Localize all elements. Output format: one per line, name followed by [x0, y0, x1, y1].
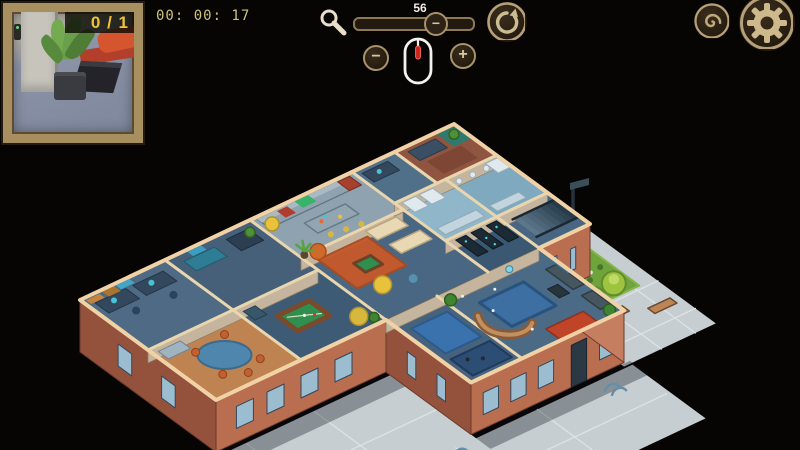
grass-tuft [597, 264, 603, 270]
hint-button[interactable] [694, 3, 730, 39]
magnifier-icon [318, 8, 350, 38]
island-item [319, 219, 323, 223]
zoom-in-button[interactable]: + [450, 43, 476, 69]
rack-light [495, 226, 497, 228]
meeting-chair [219, 370, 227, 378]
gear-icon [747, 3, 787, 43]
pouf-blue [408, 274, 418, 284]
stool [343, 226, 349, 232]
objective-photo[interactable]: 0 / 1 [3, 3, 143, 143]
zoom-slider-track[interactable] [353, 17, 475, 31]
zoom-out-button[interactable]: − [363, 45, 389, 71]
island-item [338, 215, 342, 219]
office-chair [170, 291, 178, 299]
monitor [111, 297, 117, 303]
bean-bag-yellow [350, 307, 368, 325]
photo-plant-pot [54, 72, 86, 100]
water-cooler [506, 266, 513, 273]
rack-light [485, 237, 487, 239]
urinal [470, 172, 476, 178]
plant [449, 129, 459, 139]
window [571, 247, 576, 271]
island-item [324, 214, 328, 218]
urinal [456, 178, 462, 184]
lamp-head [570, 178, 589, 190]
plant [369, 312, 379, 322]
paper-scrap [493, 288, 496, 291]
timer: 00: 00: 17 [156, 8, 250, 24]
game-screen: 0 / 1 00: 00: 17 56 − − + [0, 0, 800, 450]
photo-door-panel [14, 24, 21, 40]
meeting-chair [244, 369, 252, 377]
office-chair [132, 307, 140, 315]
ball [303, 314, 306, 317]
stool [358, 221, 364, 227]
paper-scrap [492, 309, 495, 312]
mouse-scroll-icon [402, 36, 434, 86]
entrance-door [571, 338, 586, 387]
meeting-chair [256, 355, 264, 363]
rack-light [494, 243, 496, 245]
plant [445, 294, 457, 306]
settings-button[interactable] [739, 0, 795, 51]
bush-highlight [609, 274, 619, 284]
meeting-table [198, 341, 252, 369]
spiral-icon [706, 15, 720, 26]
dumbbell [466, 358, 470, 362]
reset-view-button[interactable] [487, 2, 527, 42]
bean-bag-yellow [265, 217, 279, 231]
meeting-chair [221, 331, 229, 339]
paper-scrap [461, 295, 464, 298]
scroll-wheel [416, 46, 421, 59]
paper-scrap [531, 328, 534, 331]
found-counter: 0 / 1 [65, 12, 134, 33]
monitor [148, 280, 154, 286]
ball [313, 313, 316, 316]
zoom-slider-handle[interactable]: − [424, 12, 448, 36]
bean-bag-yellow [374, 276, 392, 294]
rotate-arrowhead [510, 9, 519, 18]
rack-light [465, 240, 467, 242]
plant [245, 227, 255, 237]
dumbbell [481, 356, 485, 360]
stool [328, 231, 334, 237]
monitor [377, 169, 382, 174]
meeting-chair [192, 348, 200, 356]
